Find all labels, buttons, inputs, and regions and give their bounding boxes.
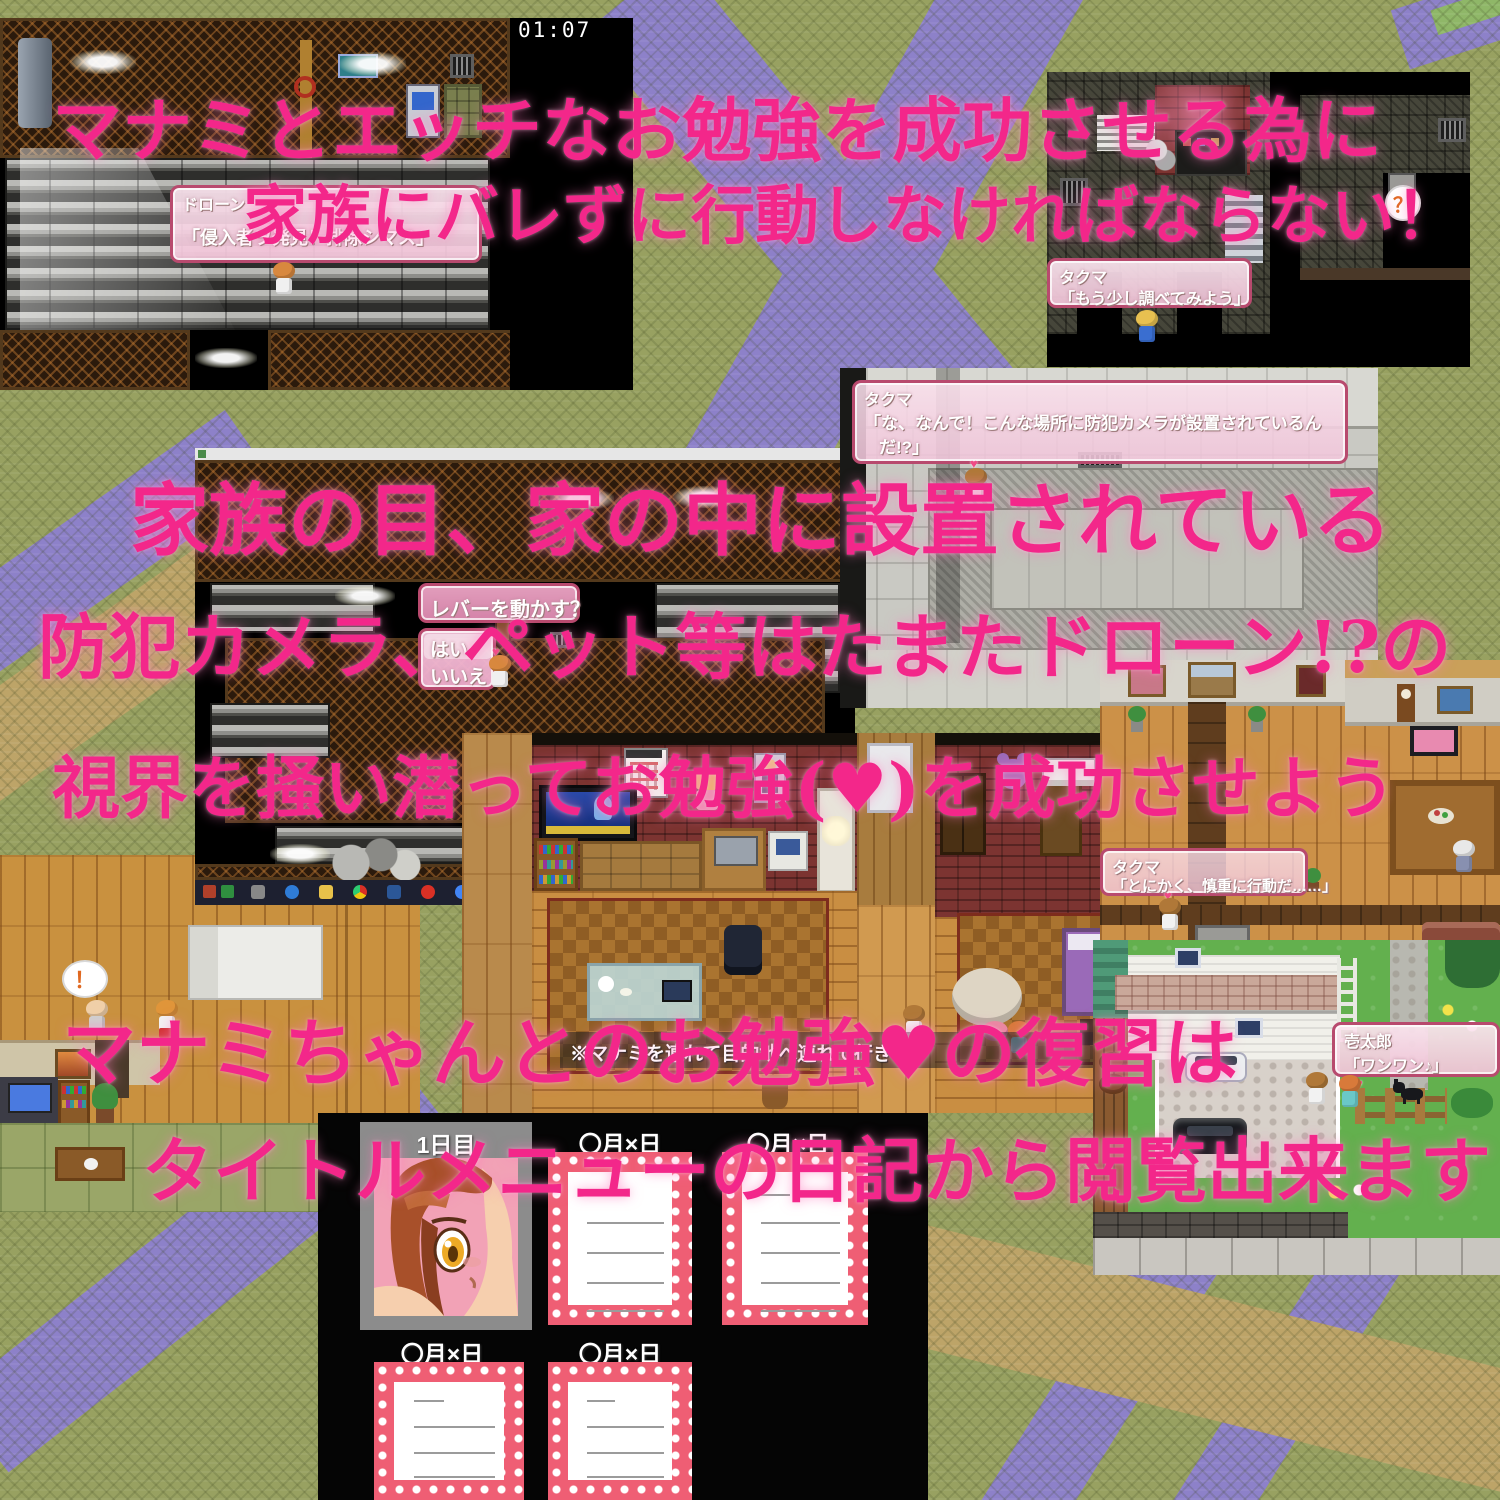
rooftop-dialog: タクマ 「な、なんで！こんな場所に防犯カメラが設置されているん だ!?」 <box>852 380 1348 464</box>
screenshot-street: 壱太郎 「ワンワン♪」 ♥ <box>1093 940 1500 1275</box>
bush <box>1451 1088 1493 1118</box>
taskbar-edge-icon[interactable] <box>285 885 299 899</box>
taskbar-rpgmaker-icon[interactable] <box>203 885 216 898</box>
tagline-line5: 視界を掻い潜ってお勉強(♥)を成功させよう <box>52 752 1396 827</box>
ceiling-light <box>195 348 257 368</box>
black-dog <box>1393 1082 1425 1104</box>
junk-pile <box>315 838 435 880</box>
taskbar-folder-icon[interactable] <box>319 885 333 899</box>
book-stand <box>768 831 808 871</box>
taskbar-search-icon[interactable] <box>251 885 265 899</box>
wall-base <box>1300 268 1470 280</box>
takuma-dialog: タクマ 「とにかく、慎重に行動だ……」 <box>1100 848 1308 896</box>
tagline-line4: 防犯カメラ、ペット等はたまたドローン!?の <box>38 608 1451 686</box>
tagline-line2: 家族にバレずに行動しなければならない！ <box>243 182 1459 252</box>
sidewalk <box>1093 1238 1500 1275</box>
tagline-line1: マナミとエッチなお勉強を成功させる為に <box>52 92 1382 169</box>
bed <box>188 925 323 1000</box>
diary-entry-card[interactable] <box>548 1362 692 1500</box>
picture-blue <box>1437 686 1473 714</box>
takuma-dialog: タクマ 「もう少し調べてみよう」 <box>1047 258 1252 308</box>
taskbar-media-icon[interactable] <box>421 885 435 899</box>
speaker-name: ドローン <box>182 191 245 215</box>
tagline-line3: 家族の目、家の中に設置されている <box>130 478 1392 565</box>
dialog-line: 「とにかく、慎重に行動だ……」 <box>1112 875 1337 896</box>
desk-laptop <box>702 828 766 891</box>
speaker-name: タクマ <box>864 386 912 410</box>
window-app-icon <box>198 450 206 458</box>
exclamation-balloon: ！ <box>62 960 108 998</box>
ceiling-light <box>70 50 136 74</box>
dialog-line: 「ワンワン♪」 <box>1344 1052 1448 1076</box>
attic-wall <box>268 330 513 390</box>
duct-pipe <box>18 38 52 128</box>
dog-dialog: 壱太郎 「ワンワン♪」 <box>1332 1022 1500 1077</box>
window <box>1235 1018 1263 1038</box>
character-girl <box>1338 1075 1362 1113</box>
dialog-line: 「もう少し調べてみよう」 <box>1059 285 1250 309</box>
bookshelf <box>534 838 578 891</box>
window <box>1175 948 1201 968</box>
taskbar-store-icon[interactable] <box>387 885 401 899</box>
ceiling-light <box>335 586 395 606</box>
vent <box>450 54 474 78</box>
drawer-cabinet <box>580 841 702 891</box>
taskbar-tree-icon[interactable] <box>221 885 234 898</box>
exclamation-icon: ！ <box>74 963 96 995</box>
diary-entry-card[interactable] <box>374 1362 524 1500</box>
vent <box>1438 118 1466 142</box>
potted-plant <box>1128 706 1146 734</box>
tea-table <box>55 1147 125 1181</box>
wall-tv-pink <box>1410 726 1458 756</box>
character-kid <box>1158 898 1182 936</box>
dialog-line1: 「な、なんで！こんな場所に防犯カメラが設置されているん <box>864 409 1322 434</box>
dialog-line2: だ!?」 <box>879 433 929 458</box>
attic-wall <box>0 330 190 390</box>
taskbar-chrome-icon[interactable] <box>353 885 367 899</box>
character-boy <box>1305 1072 1329 1110</box>
game-clock: 01:07 <box>518 18 628 44</box>
ceiling-light <box>340 52 406 76</box>
office-chair <box>724 925 762 975</box>
computer-desk <box>0 1077 58 1129</box>
roof-brick-band <box>1115 975 1340 1010</box>
tagline-line6: マナミちゃんとのお勉強♥の復習は <box>62 1014 1238 1095</box>
dining-table <box>1390 780 1500 875</box>
speaker-name: 壱太郎 <box>1344 1028 1392 1052</box>
window-titlebar[interactable] <box>195 448 855 460</box>
character-blond-kid <box>1135 310 1159 348</box>
potted-plant <box>1248 706 1266 734</box>
stone-wall <box>1093 1212 1348 1240</box>
tagline-line7: タイトルメニューの日記から閲覧出来ます <box>142 1132 1491 1210</box>
character-white-hair <box>1452 840 1476 878</box>
tree <box>1445 940 1500 988</box>
grandfather-clock <box>1397 684 1415 722</box>
promo-collage: ！ <box>0 0 1500 1500</box>
character-kid <box>272 262 296 300</box>
